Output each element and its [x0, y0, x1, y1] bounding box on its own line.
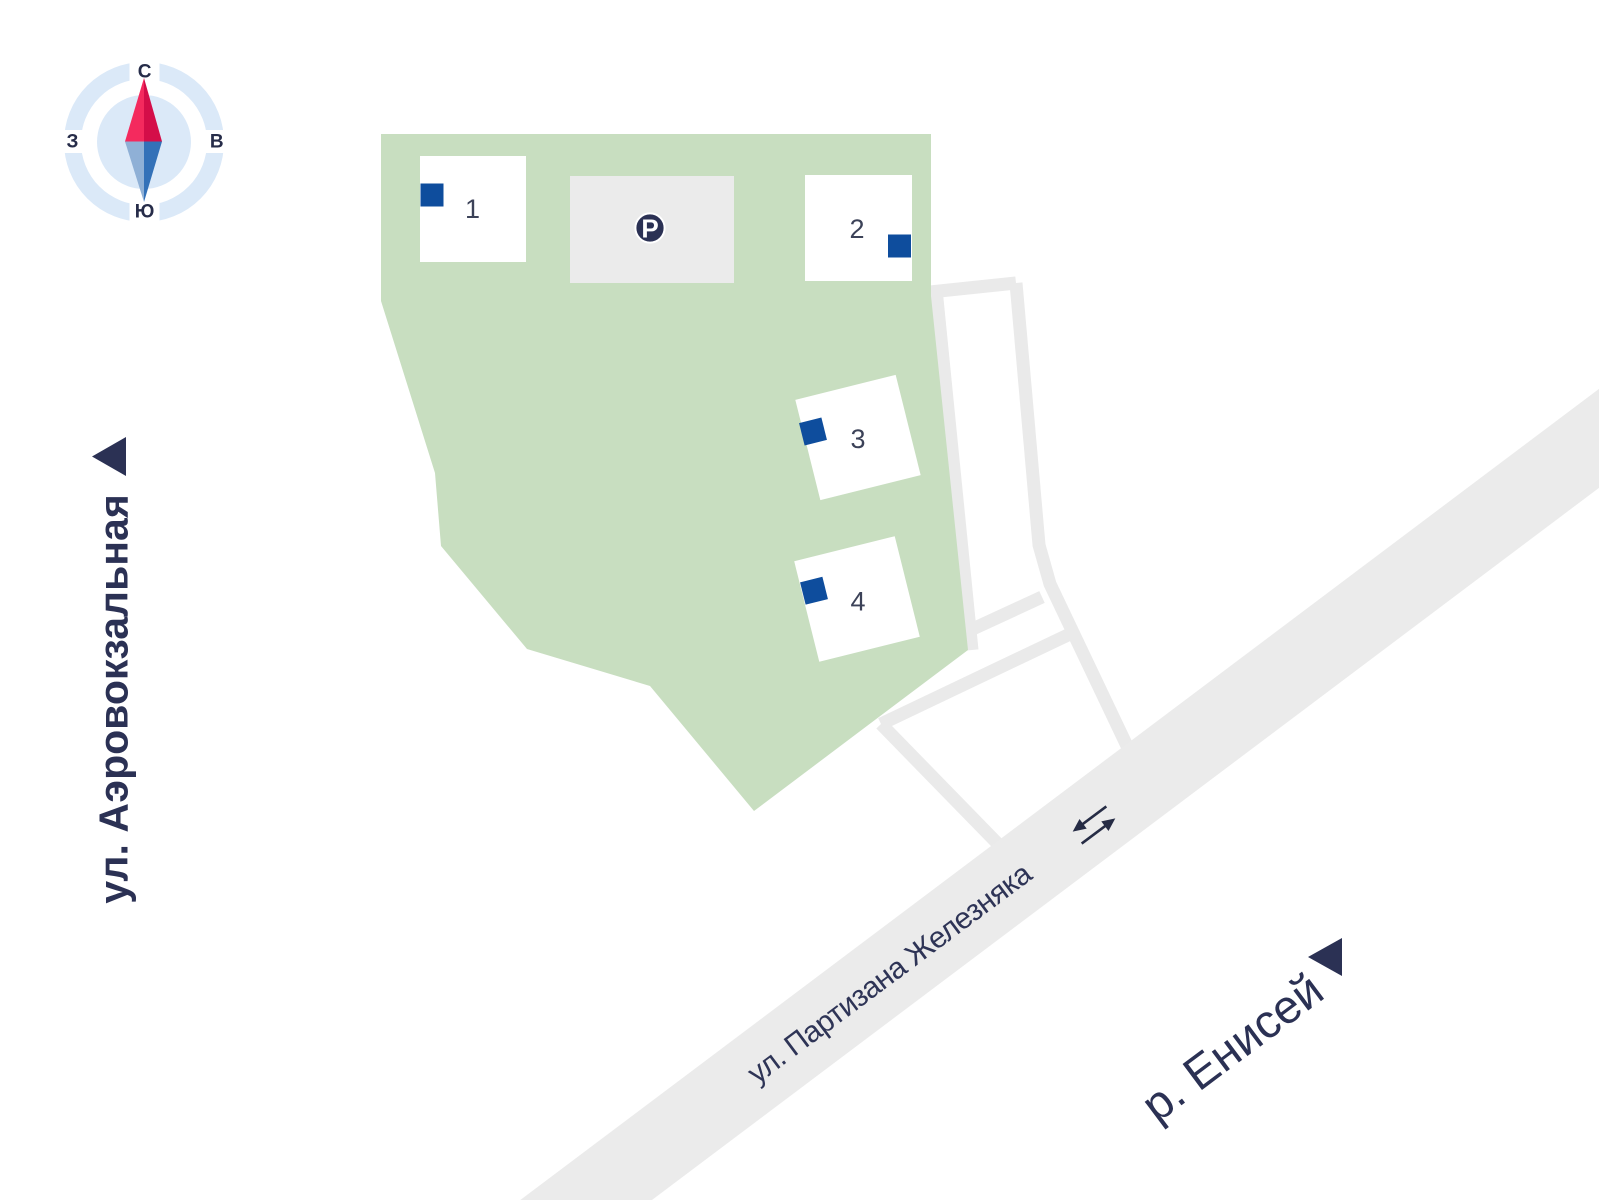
- svg-text:3: 3: [850, 424, 865, 454]
- svg-text:4: 4: [850, 586, 865, 616]
- svg-text:2: 2: [849, 214, 864, 244]
- svg-text:З: З: [66, 132, 78, 153]
- svg-text:С: С: [138, 62, 152, 83]
- svg-text:В: В: [210, 132, 224, 153]
- svg-text:P: P: [641, 213, 658, 243]
- svg-text:1: 1: [465, 194, 480, 224]
- svg-text:ул. Аэровокзальная: ул. Аэровокзальная: [90, 494, 136, 904]
- svg-text:Ю: Ю: [135, 202, 155, 223]
